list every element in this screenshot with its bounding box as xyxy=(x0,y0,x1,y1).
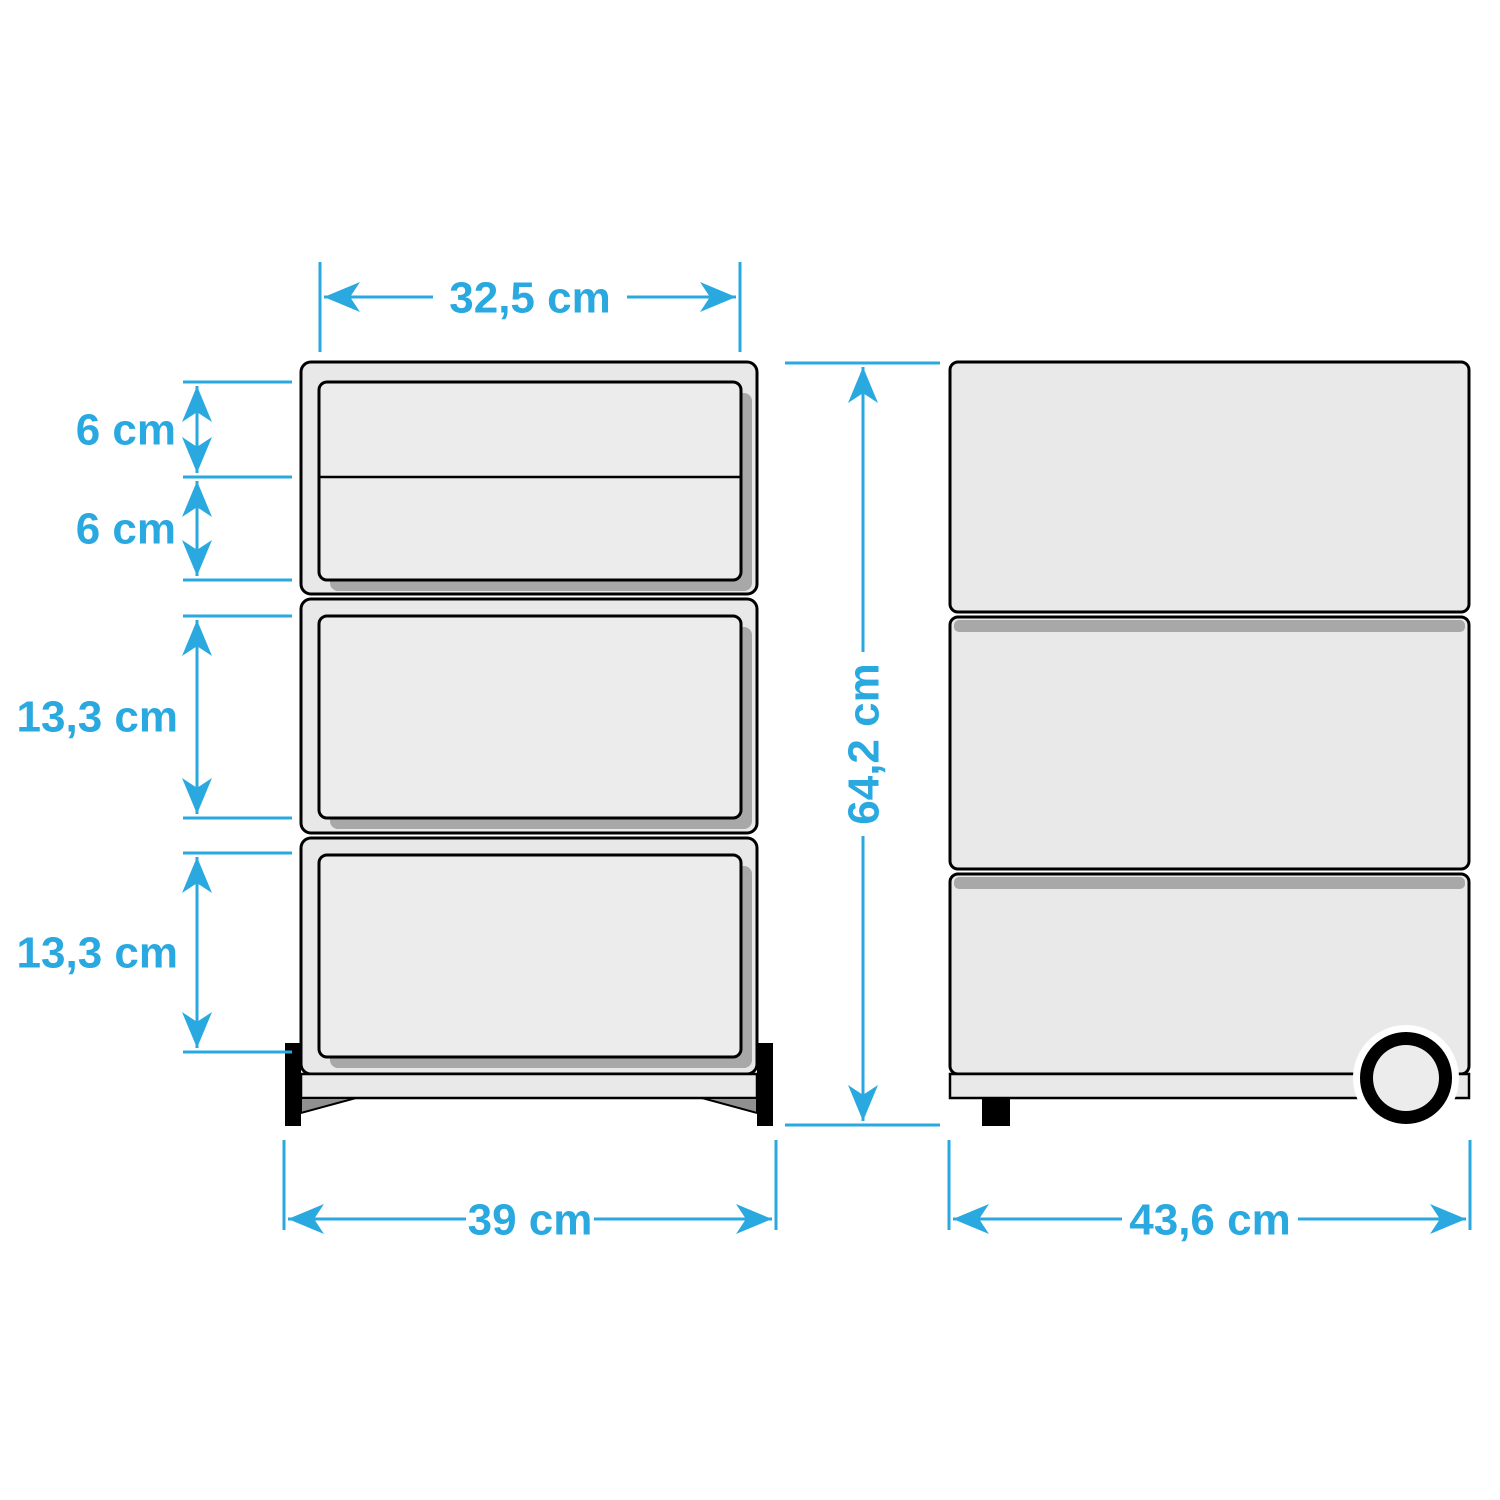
front-view xyxy=(285,362,773,1126)
dim-large-drawer-1: 13,3 cm xyxy=(17,616,292,818)
dim-label-drawer-width: 32,5 cm xyxy=(449,274,610,323)
bottom-drawer-panel xyxy=(319,855,741,1057)
caster-wheel-hub xyxy=(1373,1045,1439,1111)
side-foot xyxy=(982,1098,1010,1126)
cabinet-dimension-drawing: 32,5 cm 6 cm 6 cm 13,3 cm 13,3 cm xyxy=(0,0,1500,1500)
side-view xyxy=(950,362,1469,1131)
side-module-middle xyxy=(950,617,1469,869)
dimension-diagram: 32,5 cm 6 cm 6 cm 13,3 cm 13,3 cm xyxy=(0,0,1500,1500)
dim-overall-height: 64,2 cm xyxy=(785,363,940,1125)
right-caster-mount xyxy=(702,1098,757,1113)
front-right-foot xyxy=(757,1043,773,1126)
dim-label-large-drawer-2: 13,3 cm xyxy=(17,929,178,978)
middle-drawer-panel xyxy=(319,616,741,818)
dim-label-small-drawer-2: 6 cm xyxy=(76,505,176,554)
dim-drawer-width: 32,5 cm xyxy=(320,262,740,352)
front-left-foot xyxy=(285,1043,301,1126)
front-plinth xyxy=(301,1074,757,1098)
dim-overall-width: 39 cm xyxy=(284,1140,776,1245)
dim-small-drawer-2: 6 cm xyxy=(76,481,292,580)
left-caster-mount xyxy=(301,1098,356,1113)
dim-large-drawer-2: 13,3 cm xyxy=(17,853,292,1052)
dim-overall-depth: 43,6 cm xyxy=(949,1140,1470,1245)
dim-label-overall-depth: 43,6 cm xyxy=(1129,1196,1290,1245)
top-drawer-panel xyxy=(319,382,741,580)
side-shadow-band-1 xyxy=(954,620,1465,632)
dim-label-large-drawer-1: 13,3 cm xyxy=(17,693,178,742)
dim-label-small-drawer-1: 6 cm xyxy=(76,406,176,455)
dim-small-drawer-1: 6 cm xyxy=(76,382,292,477)
dim-label-overall-width: 39 cm xyxy=(468,1196,593,1245)
side-shadow-band-2 xyxy=(954,877,1465,889)
side-module-top xyxy=(950,362,1469,612)
dim-label-overall-height: 64,2 cm xyxy=(840,663,889,824)
